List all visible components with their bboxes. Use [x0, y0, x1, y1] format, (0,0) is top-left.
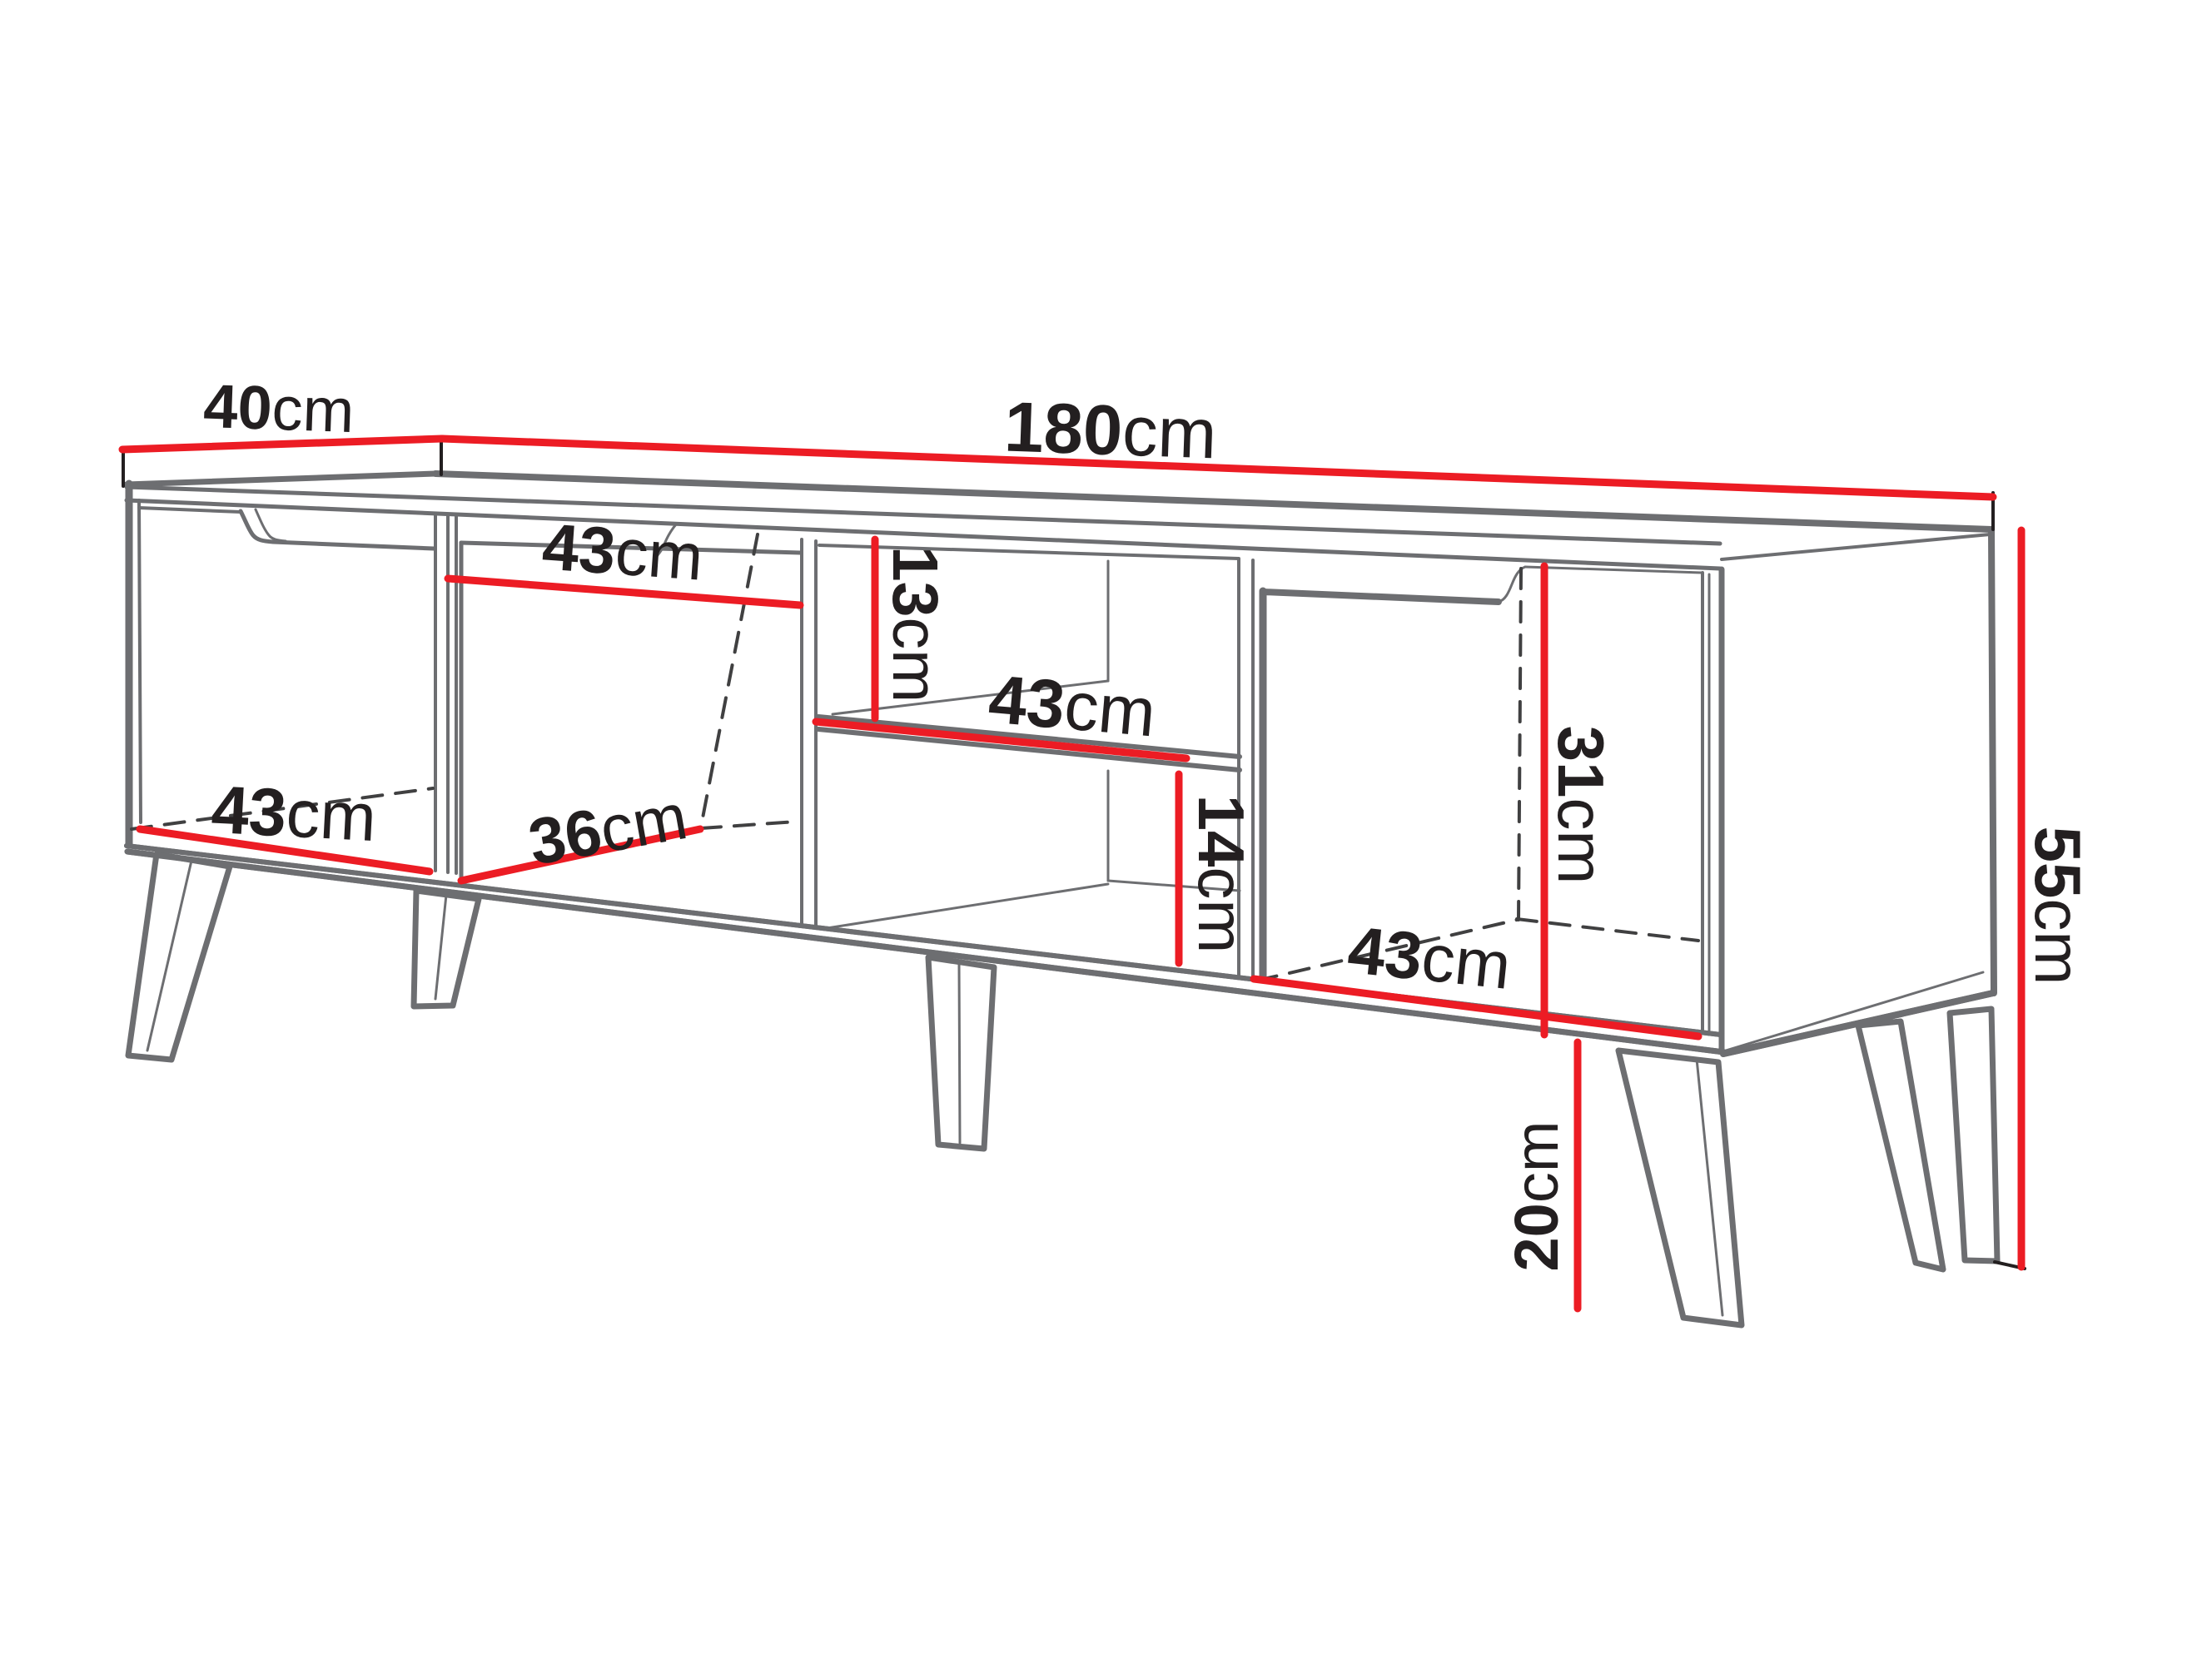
svg-text:13cm: 13cm: [879, 546, 951, 703]
svg-text:43cm: 43cm: [210, 772, 379, 856]
svg-text:43cm: 43cm: [986, 661, 1159, 751]
svg-text:31cm: 31cm: [1544, 726, 1618, 885]
svg-text:40cm: 40cm: [202, 371, 355, 445]
svg-text:180cm: 180cm: [1003, 388, 1218, 474]
svg-text:43cm: 43cm: [540, 509, 706, 594]
svg-text:14cm: 14cm: [1185, 795, 1258, 954]
svg-text:20cm: 20cm: [1502, 1121, 1571, 1272]
svg-text:55cm: 55cm: [2021, 827, 2095, 986]
